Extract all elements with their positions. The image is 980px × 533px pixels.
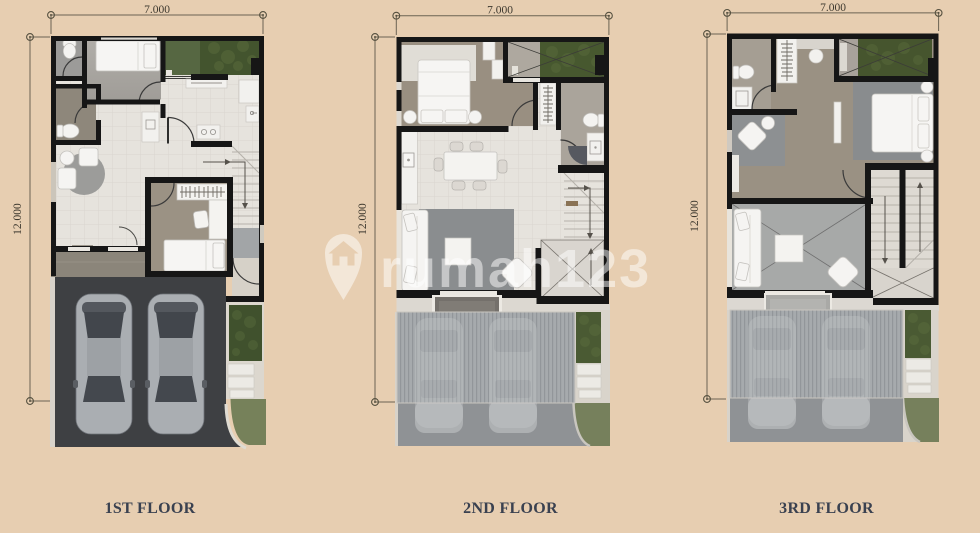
svg-text:7.000: 7.000 xyxy=(820,2,846,14)
svg-text:1ST FLOOR: 1ST FLOOR xyxy=(105,500,196,517)
svg-text:2ND FLOOR: 2ND FLOOR xyxy=(463,500,558,517)
svg-text:12.000: 12.000 xyxy=(689,200,701,232)
svg-text:12.000: 12.000 xyxy=(12,203,24,235)
svg-text:12.000: 12.000 xyxy=(357,203,369,235)
svg-text:rumah123: rumah123 xyxy=(380,239,651,299)
svg-text:3RD FLOOR: 3RD FLOOR xyxy=(779,500,874,517)
svg-text:7.000: 7.000 xyxy=(144,4,170,16)
svg-text:7.000: 7.000 xyxy=(487,5,513,17)
